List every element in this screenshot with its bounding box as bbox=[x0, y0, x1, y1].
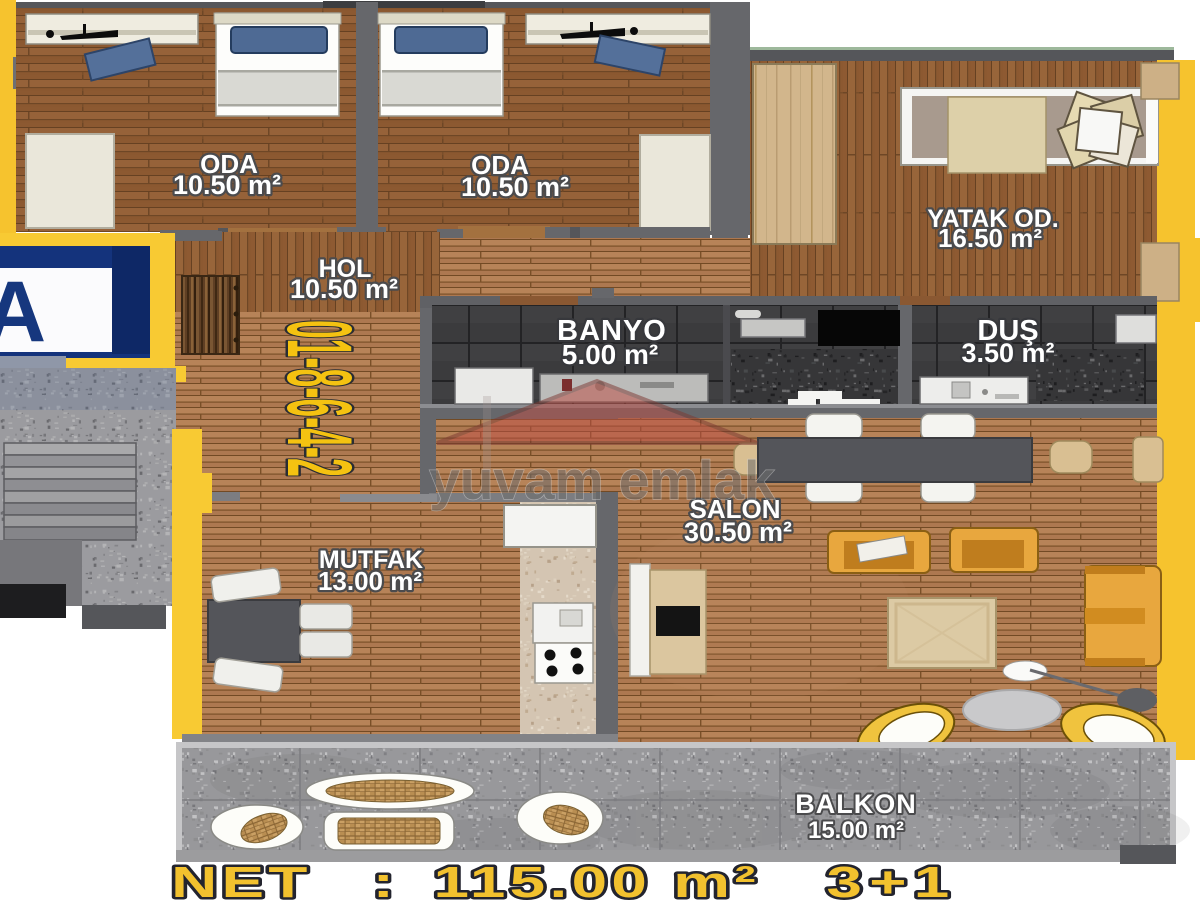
svg-text:10.50 m²: 10.50 m² bbox=[461, 172, 569, 202]
svg-text:10.50 m²: 10.50 m² bbox=[173, 170, 281, 200]
svg-text:NET: NET bbox=[171, 857, 312, 900]
svg-text:13.00 m²: 13.00 m² bbox=[318, 566, 422, 596]
svg-text:BALKON: BALKON bbox=[795, 789, 917, 819]
svg-text:3+1: 3+1 bbox=[827, 857, 957, 900]
svg-text:A: A bbox=[0, 264, 46, 360]
svg-text:10.50 m²: 10.50 m² bbox=[290, 274, 398, 304]
svg-text:5.00 m²: 5.00 m² bbox=[562, 339, 659, 370]
svg-text::: : bbox=[373, 857, 399, 900]
svg-text:15.00 m²: 15.00 m² bbox=[808, 817, 904, 844]
svg-text:16.50 m²: 16.50 m² bbox=[938, 223, 1042, 253]
svg-text:01-8-6-4-2: 01-8-6-4-2 bbox=[268, 320, 372, 477]
svg-text:3.50 m²: 3.50 m² bbox=[961, 338, 1054, 368]
svg-text:115.00 m²: 115.00 m² bbox=[434, 857, 760, 900]
svg-text:yuvam emlak: yuvam emlak bbox=[429, 449, 775, 511]
svg-text:30.50 m²: 30.50 m² bbox=[684, 517, 792, 547]
